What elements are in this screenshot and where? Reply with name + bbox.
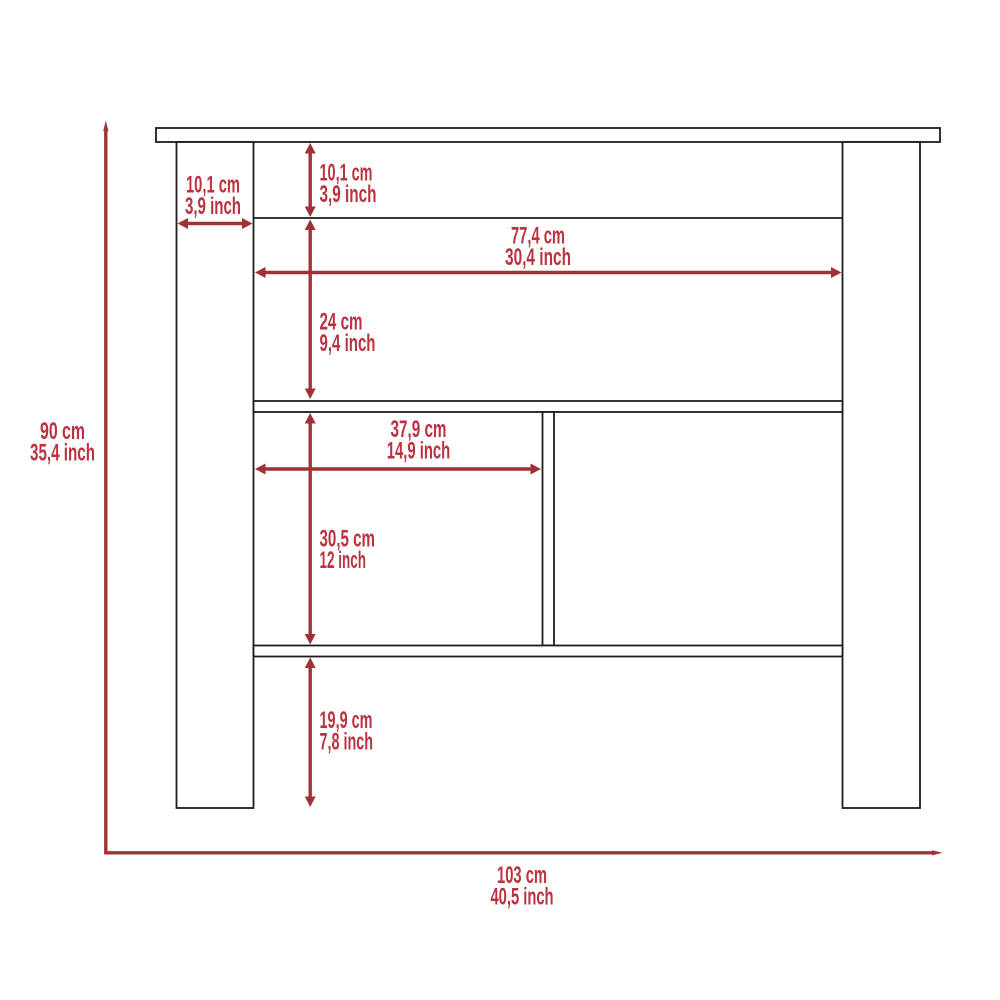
svg-text:40,5 inch: 40,5 inch xyxy=(491,884,554,911)
svg-text:3,9 inch: 3,9 inch xyxy=(185,193,241,220)
svg-text:3,9 inch: 3,9 inch xyxy=(320,181,377,208)
svg-text:35,4 inch: 35,4 inch xyxy=(30,440,95,467)
svg-text:30,4 inch: 30,4 inch xyxy=(505,244,571,271)
svg-text:14,9 inch: 14,9 inch xyxy=(387,438,451,465)
svg-text:7,8 inch: 7,8 inch xyxy=(320,729,374,756)
svg-text:12 inch: 12 inch xyxy=(320,547,367,574)
svg-text:9,4 inch: 9,4 inch xyxy=(320,330,376,357)
